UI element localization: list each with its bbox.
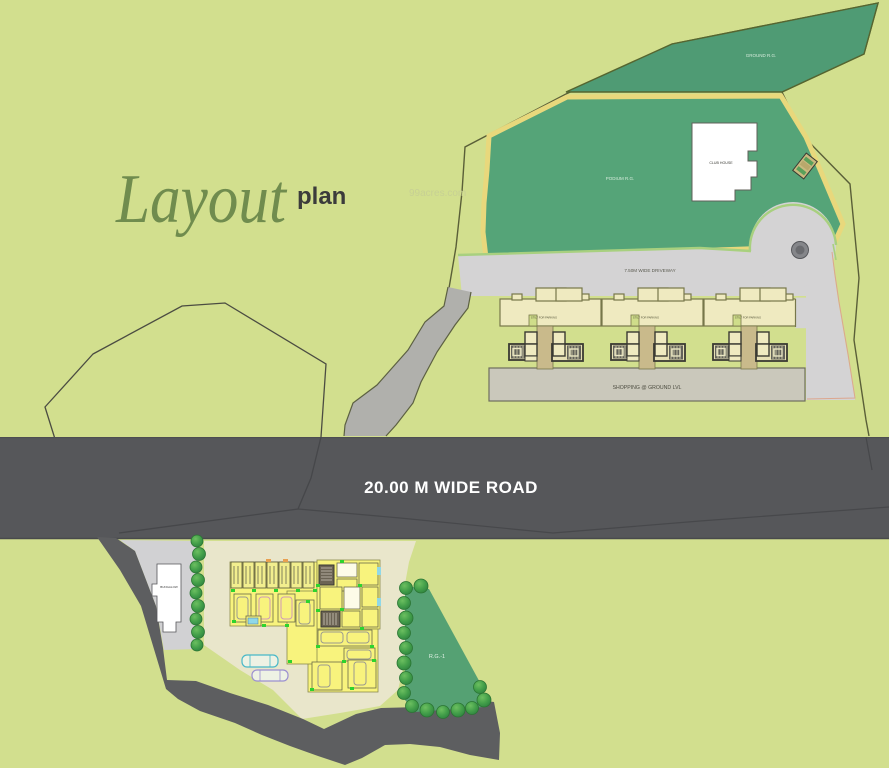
svg-text:SHOPPING @ GROUND LVL: SHOPPING @ GROUND LVL xyxy=(613,385,682,391)
svg-text:99acres.com: 99acres.com xyxy=(409,188,466,199)
svg-text:7.50M WIDE DRIVEWAY: 7.50M WIDE DRIVEWAY xyxy=(624,268,675,273)
svg-text:PODIUM R.G.: PODIUM R.G. xyxy=(606,176,635,181)
svg-text:BUNGALOW: BUNGALOW xyxy=(160,585,178,589)
svg-text:R.G.-1: R.G.-1 xyxy=(429,654,445,660)
svg-text:Layout: Layout xyxy=(115,161,287,238)
svg-text:plan: plan xyxy=(297,183,346,210)
svg-text:CLUB HOUSE: CLUB HOUSE xyxy=(709,161,733,165)
svg-text:20.00 M WIDE ROAD: 20.00 M WIDE ROAD xyxy=(364,478,538,497)
svg-text:GROUND R.G.: GROUND R.G. xyxy=(746,53,777,58)
